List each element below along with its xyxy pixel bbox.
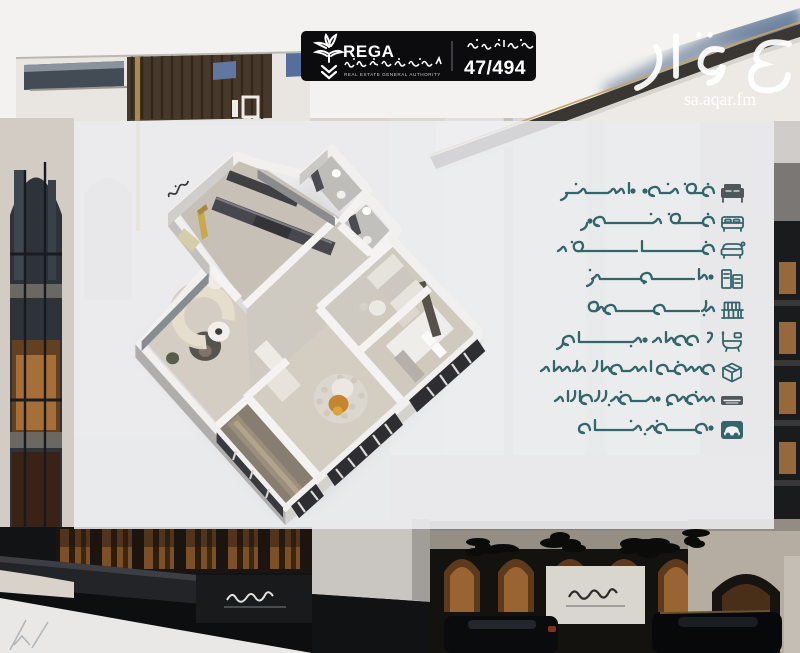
svg-text:REAL ESTATE GENERAL AUTHORITY: REAL ESTATE GENERAL AUTHORITY <box>344 72 441 77</box>
svg-text:47/494: 47/494 <box>464 57 526 79</box>
svg-text:sa.aqar.fm: sa.aqar.fm <box>684 89 756 109</box>
svg-text:REGA: REGA <box>343 42 395 61</box>
